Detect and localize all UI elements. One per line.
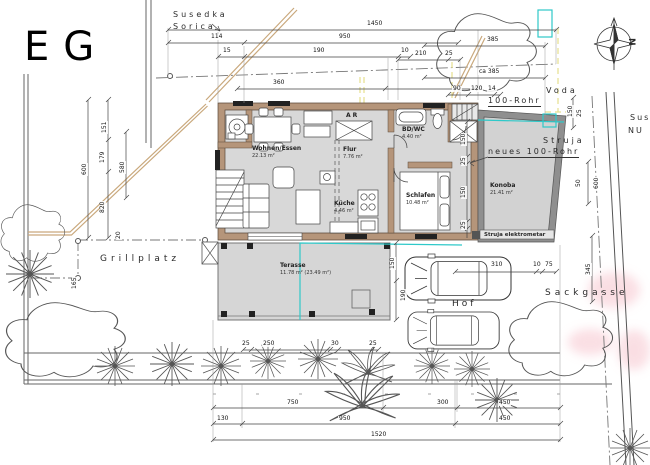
dim-label: 210 <box>414 51 427 57</box>
room-label-bdwc: BD/WC 4.40 m² <box>402 126 425 140</box>
dim-label: 820 <box>100 201 106 214</box>
room-label-konoba: Konoba 21.41 m² <box>490 182 515 196</box>
room-label-schlafen: Schlafen 10.48 m² <box>406 192 435 206</box>
dim-label: 150 <box>461 186 467 199</box>
dim-label: 450 <box>498 400 511 406</box>
room-label-terasse: Terasse 11.78 m² (23.49 m²) <box>280 262 331 276</box>
entry-steps <box>452 104 478 120</box>
dim-label: 120 <box>470 86 483 92</box>
dim-label: 750 <box>286 400 299 406</box>
dim-label: 190 <box>312 48 325 54</box>
bathtub <box>396 109 426 125</box>
dim-label: 30 <box>330 341 340 347</box>
dim-label: 360 <box>272 80 285 86</box>
dim-label: 250 <box>262 341 275 347</box>
dim-label: 25 <box>241 341 251 347</box>
street-label-right-2: NU <box>628 126 644 135</box>
dim-label: 165 <box>72 277 78 290</box>
compass-north-label: N <box>626 38 636 46</box>
dim-label: 300 <box>436 400 449 406</box>
utility-label-struja: Struja <box>543 136 585 145</box>
dim-label: 25 <box>444 51 454 57</box>
dim-label: 90 <box>452 86 462 92</box>
dim-label: 130 <box>216 416 229 422</box>
dim-label: 385 <box>486 37 499 43</box>
konoba <box>472 110 566 242</box>
dim-label: 150 <box>568 105 574 118</box>
dim-label: 150 <box>390 257 396 270</box>
dim-label: 25 <box>461 156 467 166</box>
dim-label: 14 <box>487 86 497 92</box>
dim-label: 600 <box>82 163 88 176</box>
house <box>215 101 478 240</box>
dim-label: 1450 <box>366 21 383 27</box>
floor-plan-sheet: EG Susedka Sorica Sus NU Sackgasse Hof G… <box>0 0 650 465</box>
utility-label-voda: Voda <box>546 86 578 95</box>
area-label-grillplatz: Grillplatz <box>100 254 180 264</box>
dim-label: 10 <box>532 262 542 268</box>
staircase <box>216 170 244 228</box>
area-label-hof: Hof <box>452 299 476 309</box>
utility-label-neues-100-rohr: neues 100-Rohr <box>488 147 579 158</box>
dim-label: 345 <box>586 263 592 276</box>
room-label-ar: AR <box>346 112 359 120</box>
dim-label: 25 <box>577 108 583 118</box>
dim-label: 114 <box>210 34 223 40</box>
street-label-sackgasse: Sackgasse <box>545 288 629 298</box>
room-label-wohnen: Wohnen/Essen 22.13 m² <box>252 145 301 159</box>
watermark-smudge <box>568 272 650 370</box>
street-label-sorica: Sorica <box>173 22 216 31</box>
terrace <box>202 242 390 320</box>
dim-label: ca 385 <box>478 69 500 75</box>
dim-label: 50 <box>576 178 582 188</box>
dim-label: 190 <box>401 289 407 302</box>
dim-label: 310 <box>490 262 503 268</box>
dim-label: 15 <box>222 48 232 54</box>
dim-label: 600 <box>594 177 600 190</box>
dim-label: 20 <box>116 230 122 240</box>
street-label-susedka: Susedka <box>173 10 228 19</box>
plan-title: EG <box>24 24 108 70</box>
room-label-kueche: Küche 4.46 m² <box>334 200 355 214</box>
dim-label: 150 <box>461 133 467 146</box>
dim-label: 151 <box>102 121 108 134</box>
dim-label: 25 <box>461 220 467 230</box>
dim-label: 10 <box>400 48 410 54</box>
room-label-flur: Flur 7.76 m² <box>343 146 363 160</box>
dim-label: 450 <box>498 416 511 422</box>
dim-label: 75 <box>544 262 554 268</box>
dim-label: 950 <box>338 416 351 422</box>
dim-label: 25 <box>368 341 378 347</box>
utility-label-100-rohr: 100-Rohr <box>488 96 541 107</box>
utility-label-elektrometar: Struja elektrometar <box>484 232 545 238</box>
dim-label: 950 <box>338 34 351 40</box>
dim-label: 1520 <box>370 432 387 438</box>
street-label-right-1: Sus <box>630 113 650 122</box>
dim-label: 179 <box>100 151 106 164</box>
dim-label: 580 <box>120 161 126 174</box>
